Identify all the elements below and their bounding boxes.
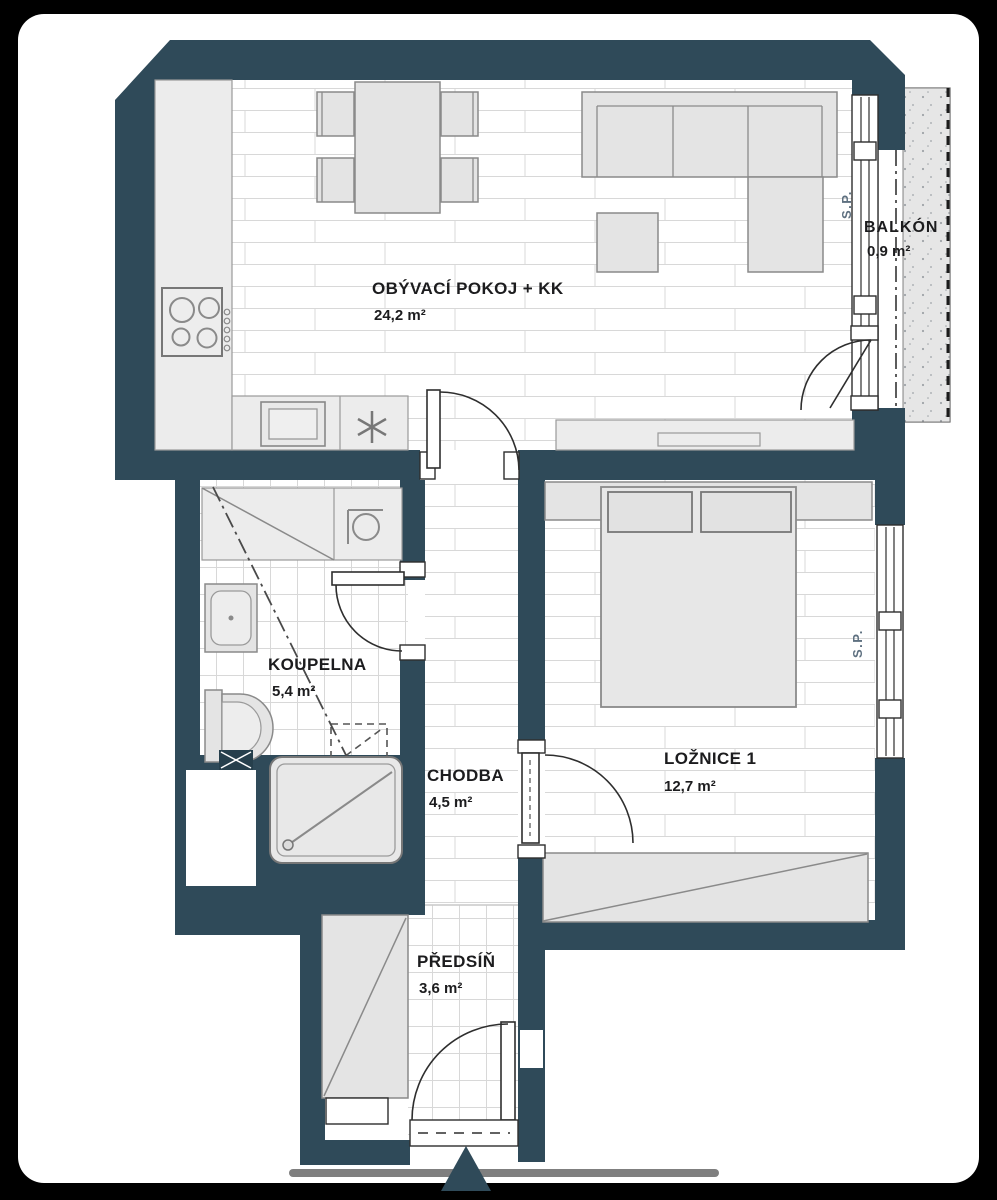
kitchen-counter-left (155, 80, 232, 450)
pillow (608, 492, 692, 532)
shoe-cabinet (326, 1098, 388, 1124)
window-label-bedroom: S.P. (850, 629, 865, 658)
stove-icon (162, 288, 230, 356)
entry-label: PŘEDSÍŇ (417, 952, 495, 971)
living-room-area: 24,2 m² (374, 307, 426, 324)
hallway-floor (425, 480, 518, 905)
wall-niche (520, 1030, 543, 1068)
washbasin-icon (205, 584, 257, 652)
bedroom-wardrobe (543, 853, 868, 922)
screenshot-frame: OBÝVACÍ POKOJ + KK 24,2 m² BALKÓN 0,9 m²… (0, 0, 997, 1200)
tv-sideboard (556, 420, 854, 450)
coffee-table (597, 213, 658, 272)
pillow (701, 492, 791, 532)
bedroom-area: 12,7 m² (664, 778, 716, 795)
balcony-area: 0,9 m² (867, 243, 910, 260)
bedroom-window (877, 525, 903, 758)
bedroom-label: LOŽNICE 1 (664, 749, 756, 768)
balcony-label: BALKÓN (864, 217, 938, 236)
entry-area: 3,6 m² (419, 980, 462, 997)
sofa-chaise (748, 177, 823, 272)
entry-wardrobe (322, 915, 408, 1098)
shower-tray-icon (270, 757, 402, 863)
hallway-label: CHODBA (427, 766, 504, 785)
bathroom-area: 5,4 m² (272, 683, 315, 700)
shaft (186, 770, 256, 886)
sink-icon (261, 402, 325, 446)
bathroom-label: KOUPELNA (268, 655, 367, 674)
floor-plan: OBÝVACÍ POKOJ + KK 24,2 m² BALKÓN 0,9 m²… (0, 0, 997, 1200)
progress-bar (289, 1169, 719, 1177)
dining-table (355, 82, 440, 213)
vent-icon (219, 750, 253, 770)
window-label-living: S.P. (839, 190, 854, 219)
living-room-label: OBÝVACÍ POKOJ + KK (372, 279, 564, 298)
hallway-area: 4,5 m² (429, 794, 472, 811)
